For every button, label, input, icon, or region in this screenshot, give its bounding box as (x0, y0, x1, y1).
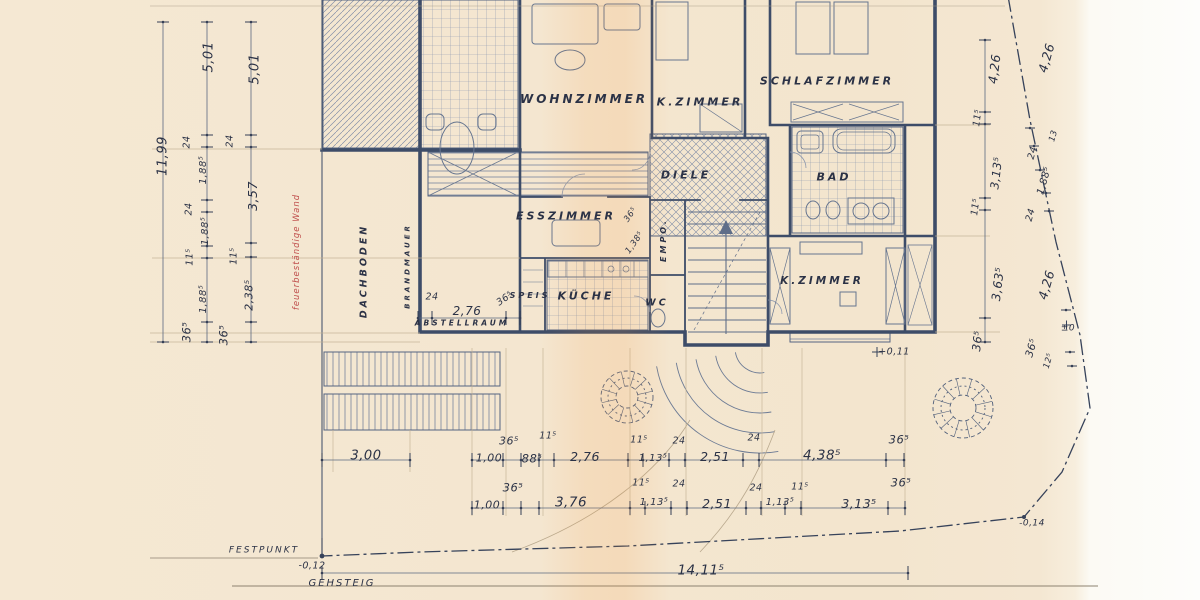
kzimmer-window-band (790, 333, 890, 342)
tree-branch (954, 420, 959, 436)
dim-label-1-13-: 1,13⁵ (639, 454, 668, 464)
tree-branch (621, 372, 624, 387)
dim-dot (250, 256, 253, 259)
dim-label-1-88-: 1,88⁵ (201, 217, 211, 246)
dim-dot (907, 572, 910, 575)
tree-branch (635, 379, 646, 389)
roof-hatch (323, 0, 419, 148)
room-label-brandmauer: BRANDMAUER (405, 223, 412, 309)
dim-label-36-: 36⁵ (181, 322, 193, 343)
dim-label-1-13-: 1,13⁵ (766, 498, 795, 508)
sideboard-band (428, 152, 648, 196)
dim-label-24: 24 (672, 479, 685, 489)
room-label-schlafzimmer: SCHLAFZIMMER (760, 76, 894, 87)
dim-dot (686, 507, 689, 510)
dim-dot (742, 459, 745, 462)
tree-foliage (941, 386, 985, 430)
dim-dot (984, 197, 987, 200)
room-label-bad: BAD (816, 172, 851, 183)
dim-dot (162, 21, 165, 24)
floor-plan-sheet: WOHNZIMMERK.ZIMMERSCHLAFZIMMERDIELEBADES… (0, 0, 1200, 600)
dim-dot (1048, 210, 1051, 213)
dim-dot (162, 341, 165, 344)
dim-dot (502, 507, 505, 510)
dim-dot (471, 459, 474, 462)
room-label-kueche: KÜCHE (558, 291, 615, 302)
room-label-diele: DIELE (661, 170, 711, 181)
dim-dot (684, 459, 687, 462)
room-label-speis: SPEIS (510, 292, 551, 300)
dim-label-2-38-: 2,38⁵ (244, 279, 255, 310)
dim-dot (321, 572, 324, 575)
dim-label-1-00: 1,00 (474, 500, 501, 511)
dim-dot (904, 507, 907, 510)
pergola-band-2 (324, 394, 500, 430)
note-fire-resistant-wall: feuerbeständige Wand (293, 194, 302, 310)
dim-dot (538, 507, 541, 510)
dim-label-11-: 11⁵ (229, 247, 239, 264)
dim-dot (250, 321, 253, 324)
dim-dot (1071, 365, 1074, 368)
dim-dot (984, 317, 987, 320)
dim-dot (1069, 351, 1072, 354)
dim-label-24: 24 (749, 483, 762, 493)
tree-foliage (601, 371, 653, 423)
dim-label-36-: 36⁵ (891, 477, 912, 489)
dim-dot (760, 507, 763, 510)
room-label-dachboden: DACHBODEN (359, 224, 369, 319)
terrace-tiles (421, 0, 518, 148)
dim-label-36-: 36⁵ (499, 436, 519, 447)
room-label-esszimmer: ESSZIMMER (516, 211, 616, 222)
dim-dot (250, 146, 253, 149)
dim-dot (321, 459, 324, 462)
tree-foliage (616, 386, 638, 408)
dim-dot (745, 507, 748, 510)
dim-label-1-13-: 1,13⁵ (640, 498, 669, 508)
dim-label-11-: 11⁵ (539, 431, 556, 441)
dim-dot (984, 39, 987, 42)
room-label-kzimmer-top: K.ZIMMER (657, 97, 744, 108)
dim-dot (668, 459, 671, 462)
dim-label-2-76: 2,76 (570, 451, 600, 464)
dim-label-3-76: 3,76 (555, 496, 587, 510)
dim-dot (800, 507, 803, 510)
survey-label-festpunkt: FESTPUNKT (229, 547, 299, 556)
dim-label-36-: 36⁵ (889, 434, 910, 446)
dim-dot (1065, 309, 1068, 312)
dim-label--0-11: +0,11 (878, 347, 910, 357)
dim-dot (206, 341, 209, 344)
dim-label-11-99: 11,99 (157, 136, 170, 176)
dim-label-11-: 11⁵ (970, 198, 982, 216)
dim-label--0-12: -0,12 (298, 561, 325, 571)
dim-label--0: ±0 (1061, 325, 1075, 334)
tree-branch (934, 411, 951, 415)
room-label-abstellraum: ABSTELLRAUM (415, 319, 510, 327)
dim-label-24: 24 (425, 292, 438, 302)
dim-label-24: 24 (672, 436, 685, 446)
survey-label-gehsteig: GEHSTEIG (308, 579, 375, 589)
wc-fixture (651, 309, 665, 327)
dim-dot (627, 459, 630, 462)
dim-label-2-76: 2,76 (453, 305, 482, 317)
dim-dot (206, 199, 209, 202)
dim-dot (206, 211, 209, 214)
dim-label-3-13-: 3,13⁵ (841, 498, 876, 511)
dim-label-11-: 11⁵ (185, 248, 195, 265)
dim-label-1-88-: 1,88⁵ (199, 285, 209, 314)
dim-dot (250, 134, 253, 137)
dim-dot (984, 209, 987, 212)
dim-label-14-11-: 14,11⁵ (677, 564, 724, 578)
dim-label-2-51: 2,51 (702, 498, 732, 511)
pergola-band-1 (324, 352, 500, 386)
room-label-empore: EMPO. (660, 218, 668, 262)
dim-dot (519, 317, 522, 320)
wardrobe (791, 102, 903, 122)
tree-branch (972, 418, 984, 430)
dim-label-1-00: 1,00 (476, 453, 503, 464)
dim-label-36-: 36⁵ (503, 482, 524, 494)
dim-label-2-51: 2,51 (700, 451, 730, 464)
room-label-wohnzimmer: WOHNZIMMER (520, 93, 648, 105)
tree-foliage (933, 378, 993, 438)
dim-label-11-: 11⁵ (791, 482, 808, 492)
dim-label-36-: 36⁵ (971, 330, 985, 352)
dim-dot (250, 341, 253, 344)
dim-dot (553, 459, 556, 462)
tree-branch (966, 421, 970, 438)
dim-label-3-57: 3,57 (247, 181, 260, 211)
dim-label-1-88-: 1,88⁵ (199, 156, 209, 185)
dim-dot (887, 507, 890, 510)
tree-branch (608, 404, 619, 414)
dim-label-24: 24 (225, 134, 235, 147)
dim-label-24: 24 (182, 135, 192, 148)
tree-branch (602, 399, 617, 402)
dim-dot (206, 134, 209, 137)
dim-dot (206, 21, 209, 24)
tree-branch (609, 378, 619, 389)
dim-dot (1029, 127, 1032, 130)
bed-2 (834, 2, 868, 54)
dim-label-24: 24 (184, 202, 194, 215)
trees (601, 371, 993, 438)
dim-label-11-: 11⁵ (630, 435, 647, 445)
tree-branch (638, 391, 653, 394)
dim-label-24: 24 (747, 433, 760, 443)
tree-foliage (608, 378, 646, 416)
dim-dot (520, 507, 523, 510)
dim-label-11-: 11⁵ (972, 109, 984, 127)
dim-dot (903, 459, 906, 462)
dim-dot (206, 321, 209, 324)
dim-label-36-: 36⁵ (218, 325, 230, 346)
festpunkt-marker (320, 554, 325, 559)
dim-label-88-: 88⁵ (522, 453, 543, 465)
room-label-wc: WC (645, 298, 668, 308)
dim-label-11-: 11⁵ (632, 478, 649, 488)
tree-foliage (950, 395, 976, 421)
dim-label-3-00: 3,00 (351, 450, 382, 463)
dim-label-5-01: 5,01 (203, 42, 216, 73)
dim-dot (250, 242, 253, 245)
bed-1 (796, 2, 830, 54)
dim-label--0-14: -0,14 (1019, 520, 1045, 529)
dim-dot (885, 459, 888, 462)
dim-dot (629, 507, 632, 510)
dim-dot (409, 459, 412, 462)
room-label-kzimmer-bottom: K.ZIMMER (780, 276, 864, 287)
dim-dot (984, 123, 987, 126)
tree-branch (975, 412, 991, 417)
pantry-shelves (523, 270, 543, 306)
dim-dot (250, 21, 253, 24)
dim-label-4-38-: 4,38⁵ (803, 449, 841, 463)
dim-dot (206, 146, 209, 149)
dim-label-5-01: 5,01 (249, 54, 262, 85)
dining-table (552, 220, 600, 246)
dim-dot (670, 507, 673, 510)
dim-dot (206, 257, 209, 260)
dim-dot (758, 459, 761, 462)
tree-branch (638, 400, 652, 404)
